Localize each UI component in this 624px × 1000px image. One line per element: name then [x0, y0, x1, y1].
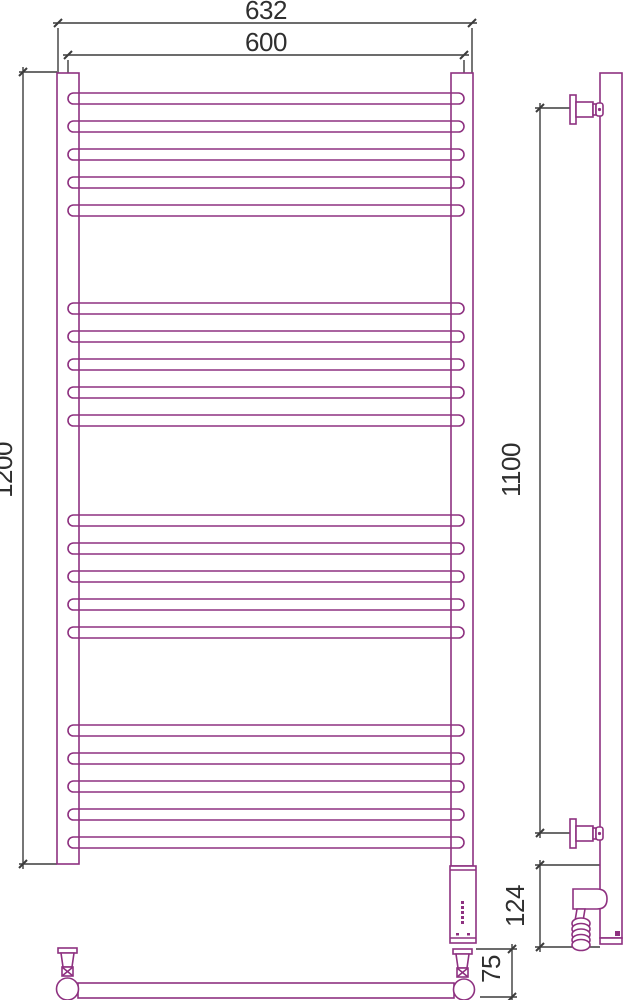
- towel-bar: [68, 809, 464, 820]
- side-view: [570, 73, 622, 951]
- heater-housing: [450, 866, 476, 943]
- dim-label-bottom-offset: 75: [476, 955, 506, 983]
- wall-bracket-top: [570, 95, 603, 124]
- dim-bracket-spacing: 1100: [496, 103, 570, 838]
- towel-bar: [68, 93, 464, 104]
- dimension-annotations: 632 600 1200 1100: [0, 0, 600, 1000]
- dim-bar-width: 600: [63, 27, 469, 74]
- towel-bar: [68, 121, 464, 132]
- dim-label-bar-width: 600: [245, 27, 287, 57]
- towel-bar: [68, 837, 464, 848]
- towel-bar: [68, 415, 464, 426]
- towel-bar: [68, 303, 464, 314]
- cord-coil-loop: [572, 940, 590, 951]
- plug-housing: [573, 889, 607, 909]
- drawing-canvas: 632 600 1200 1100: [0, 0, 624, 1000]
- towel-bar: [68, 571, 464, 582]
- dim-label-overall-width: 632: [245, 0, 287, 25]
- towel-rail-drawing: 632 600 1200 1100: [0, 0, 624, 1000]
- right-rail: [451, 73, 473, 866]
- dim-label-overall-height: 1200: [0, 442, 18, 498]
- towel-bar: [68, 515, 464, 526]
- dim-overall-height: 1200: [0, 67, 57, 869]
- towel-bar: [68, 781, 464, 792]
- towel-bar: [68, 359, 464, 370]
- left-rail: [57, 73, 79, 864]
- left-valve: [57, 948, 79, 1000]
- right-valve: [453, 949, 475, 1000]
- wall-bracket-bottom: [570, 819, 603, 848]
- power-cord-coil: [572, 918, 590, 951]
- left-valve-stem: [61, 953, 74, 967]
- drain-plug-detail: [615, 931, 620, 936]
- dim-label-heater-section: 124: [500, 885, 530, 927]
- dim-bottom-offset: 75: [476, 944, 517, 1000]
- left-valve-nut: [62, 967, 73, 976]
- towel-bar: [68, 725, 464, 736]
- side-rail-profile: [600, 73, 622, 938]
- towel-bar: [68, 543, 464, 554]
- right-valve-ball: [454, 979, 475, 1000]
- towel-bars: [68, 93, 464, 848]
- towel-bar: [68, 149, 464, 160]
- towel-bar: [68, 387, 464, 398]
- bottom-tube: [78, 983, 454, 998]
- towel-bar: [68, 599, 464, 610]
- towel-bar: [68, 177, 464, 188]
- dim-label-bracket-spacing: 1100: [496, 443, 526, 497]
- towel-bar: [68, 331, 464, 342]
- right-valve-nut: [457, 968, 468, 977]
- front-view: [57, 73, 477, 1000]
- towel-bar: [68, 205, 464, 216]
- left-valve-ball: [57, 978, 79, 1000]
- right-valve-stem: [456, 954, 469, 968]
- towel-bar: [68, 753, 464, 764]
- towel-bar: [68, 627, 464, 638]
- side-rail-bottom-cap: [600, 938, 622, 944]
